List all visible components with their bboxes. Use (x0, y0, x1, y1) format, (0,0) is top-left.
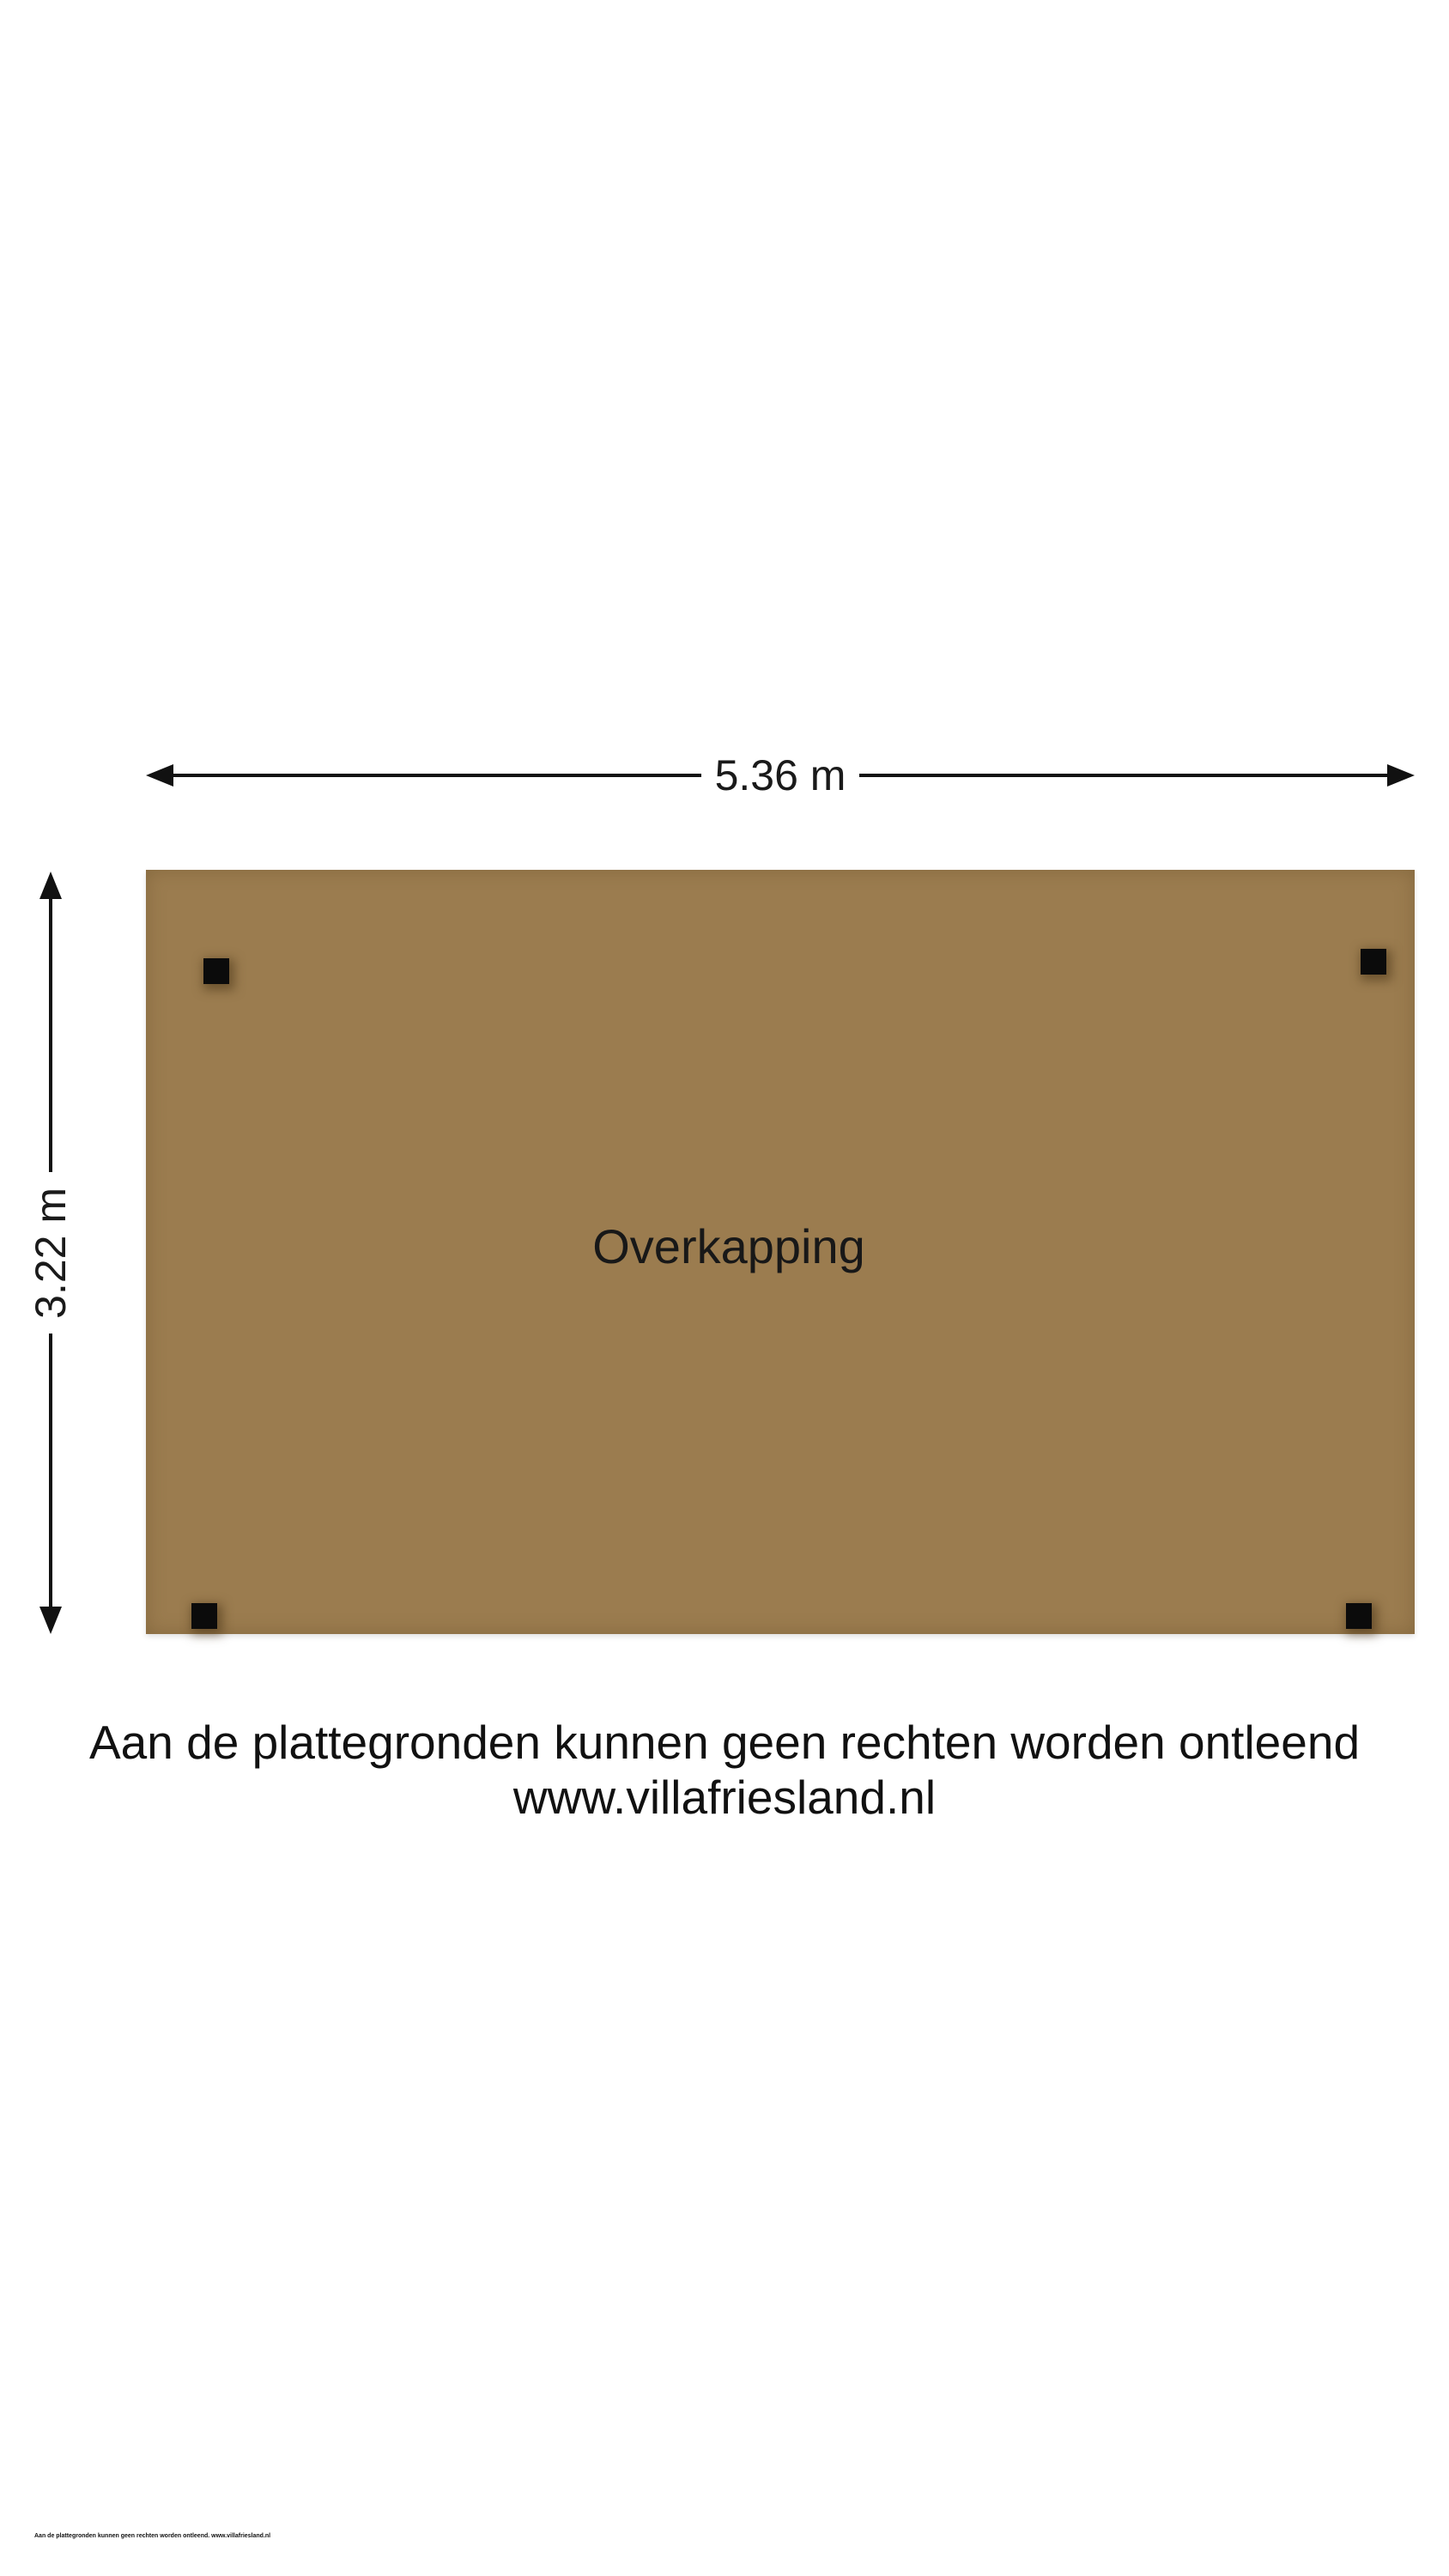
arrow-down-icon (39, 1607, 62, 1634)
fine-print-text: Aan de plattegronden kunnen geen rechten… (34, 2533, 270, 2539)
dimension-line-segment (173, 774, 701, 777)
arrow-left-icon (146, 764, 173, 787)
height-dimension-label: 3.22 m (29, 1172, 72, 1334)
arrow-right-icon (1387, 764, 1415, 787)
post-top-right (1361, 949, 1386, 975)
website-text: www.villafriesland.nl (0, 1771, 1449, 1826)
dimension-line-segment (859, 774, 1387, 777)
dimension-line-segment (49, 899, 52, 1172)
arrow-up-icon (39, 872, 62, 899)
disclaimer-text: Aan de plattegronden kunnen geen rechten… (0, 1716, 1449, 1771)
post-top-left (203, 958, 229, 984)
width-dimension-label: 5.36 m (701, 754, 860, 797)
area-label: Overkapping (592, 1223, 865, 1271)
post-bottom-right (1346, 1603, 1372, 1629)
post-bottom-left (191, 1603, 217, 1629)
caption: Aan de plattegronden kunnen geen rechten… (0, 1716, 1449, 1826)
width-dimension-line: 5.36 m (146, 755, 1415, 796)
height-dimension-line: 3.22 m (30, 872, 71, 1634)
dimension-line-segment (49, 1334, 52, 1607)
